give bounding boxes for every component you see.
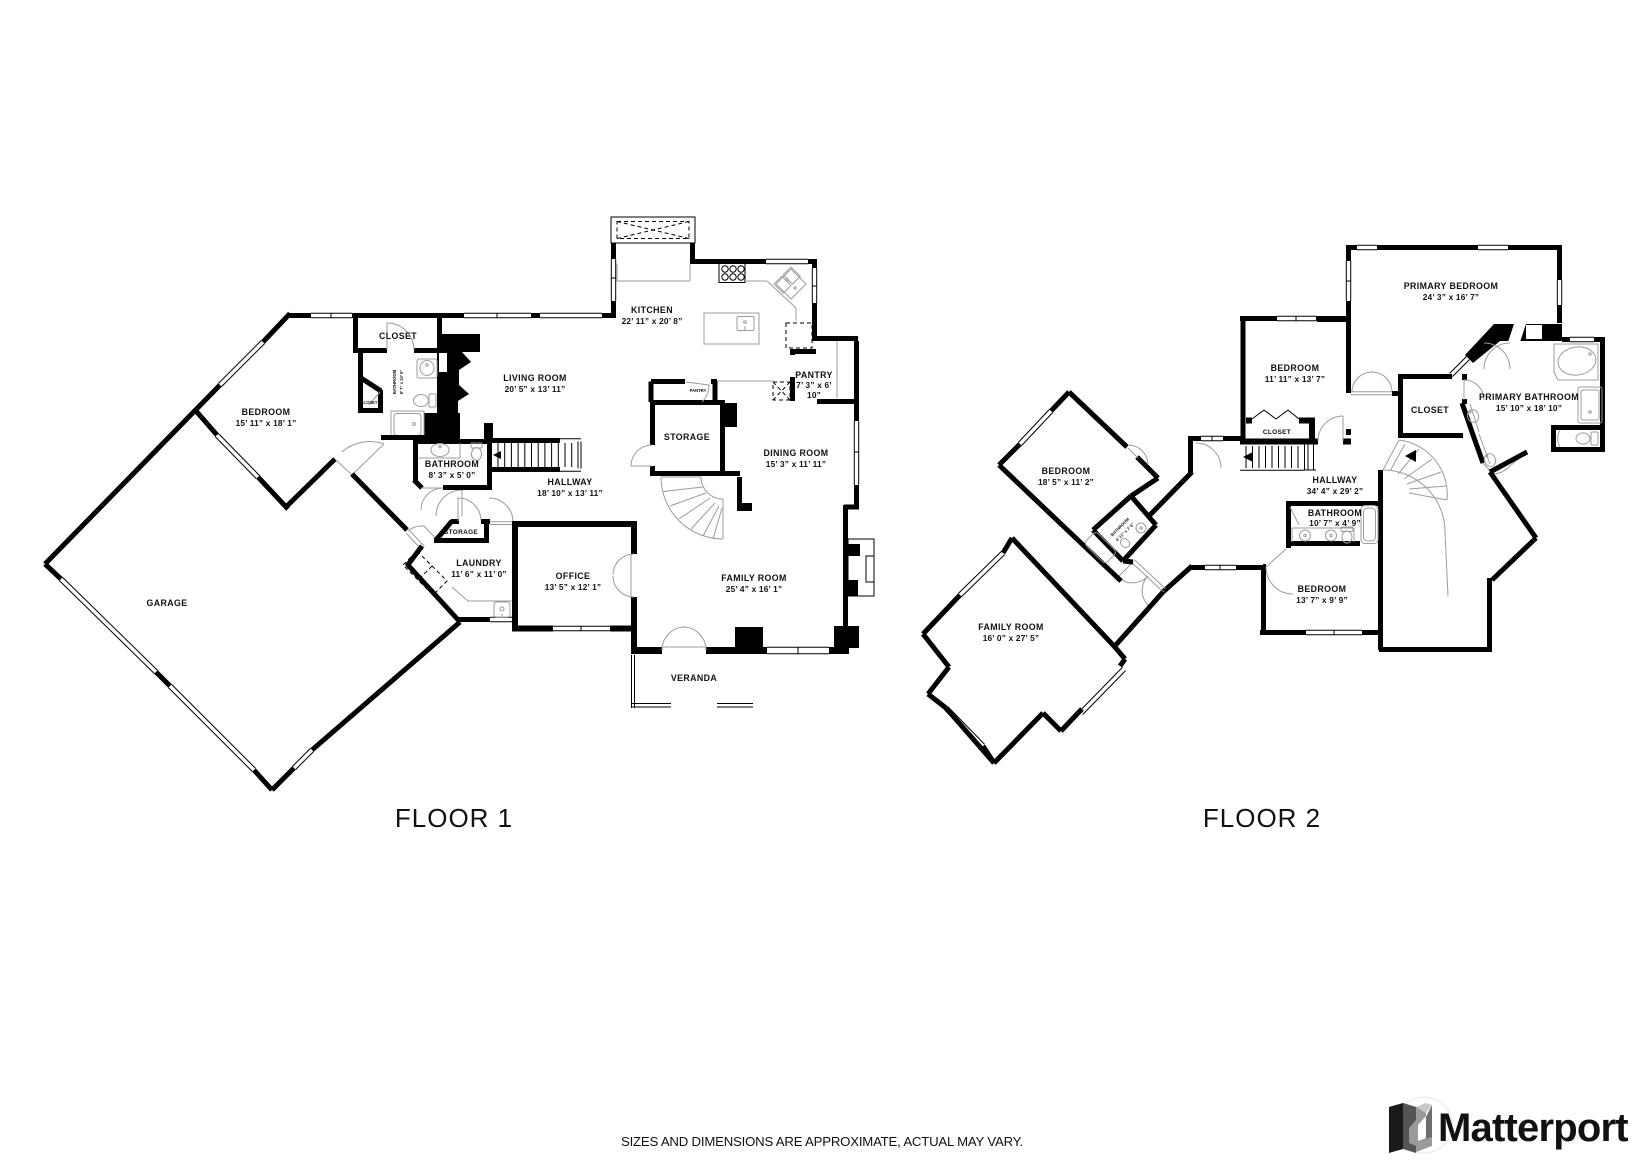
svg-text:BEDROOM: BEDROOM xyxy=(1298,584,1347,594)
svg-text:STORAGE: STORAGE xyxy=(444,529,478,536)
svg-text:11’ 11” x 13’ 7”: 11’ 11” x 13’ 7” xyxy=(1265,374,1325,384)
svg-text:GARAGE: GARAGE xyxy=(146,598,187,608)
svg-text:CLOSET: CLOSET xyxy=(379,331,417,341)
svg-text:FAMILY ROOM: FAMILY ROOM xyxy=(978,622,1044,632)
svg-text:BEDROOM: BEDROOM xyxy=(242,407,291,417)
svg-text:11’ 6” x 11’ 0”: 11’ 6” x 11’ 0” xyxy=(451,569,507,579)
svg-text:BEDROOM: BEDROOM xyxy=(1271,363,1320,373)
svg-text:15’ 11” x 18’ 1”: 15’ 11” x 18’ 1” xyxy=(236,418,297,428)
svg-text:HALLWAY: HALLWAY xyxy=(548,477,593,487)
svg-text:LIVING ROOM: LIVING ROOM xyxy=(503,373,567,383)
svg-text:PANTRY: PANTRY xyxy=(795,370,833,380)
svg-text:7’ 3” x 6’: 7’ 3” x 6’ xyxy=(796,380,832,390)
svg-text:CLOSET: CLOSET xyxy=(361,400,378,405)
svg-text:PANTRY: PANTRY xyxy=(690,388,707,393)
svg-text:FLOOR 1: FLOOR 1 xyxy=(395,803,513,833)
svg-text:34’ 4” x 29’ 2”: 34’ 4” x 29’ 2” xyxy=(1307,486,1364,496)
svg-text:15’ 3” x 11’ 11”: 15’ 3” x 11’ 11” xyxy=(766,459,826,469)
svg-text:HALLWAY: HALLWAY xyxy=(1313,475,1358,485)
svg-text:KITCHEN: KITCHEN xyxy=(631,305,673,315)
svg-text:10”: 10” xyxy=(807,390,821,400)
svg-text:FAMILY ROOM: FAMILY ROOM xyxy=(721,573,787,583)
svg-text:OFFICE: OFFICE xyxy=(556,571,591,581)
svg-text:20’ 5” x 13’ 11”: 20’ 5” x 13’ 11” xyxy=(505,384,566,394)
svg-text:25’ 4” x 16’ 1”: 25’ 4” x 16’ 1” xyxy=(726,584,783,594)
svg-text:22’ 11” x 20’ 8”: 22’ 11” x 20’ 8” xyxy=(622,316,683,326)
svg-text:15’ 10” x 18’ 10”: 15’ 10” x 18’ 10” xyxy=(1496,403,1562,413)
svg-text:CLOSET: CLOSET xyxy=(1263,429,1291,436)
svg-text:BATHROOM: BATHROOM xyxy=(425,459,479,469)
svg-text:LAUNDRY: LAUNDRY xyxy=(456,558,501,568)
svg-text:BEDROOM: BEDROOM xyxy=(1042,466,1091,476)
svg-text:BATHROOM: BATHROOM xyxy=(392,369,397,394)
svg-text:18’ 10” x 13’ 11”: 18’ 10” x 13’ 11” xyxy=(537,488,603,498)
svg-text:VERANDA: VERANDA xyxy=(671,673,718,683)
svg-text:BATHROOM: BATHROOM xyxy=(1308,508,1362,518)
svg-text:SIZES AND DIMENSIONS ARE APPRO: SIZES AND DIMENSIONS ARE APPROXIMATE, AC… xyxy=(621,1134,1023,1149)
svg-text:8’ 7” x 10’ 0”: 8’ 7” x 10’ 0” xyxy=(399,370,404,395)
svg-text:CLOSET: CLOSET xyxy=(1411,405,1449,415)
svg-text:13’ 5” x 12’ 1”: 13’ 5” x 12’ 1” xyxy=(545,582,602,592)
svg-text:DINING ROOM: DINING ROOM xyxy=(764,448,829,458)
svg-text:8’ 3” x 5’ 0”: 8’ 3” x 5’ 0” xyxy=(429,470,476,480)
svg-text:16’ 0” x 27’ 5”: 16’ 0” x 27’ 5” xyxy=(983,633,1040,643)
svg-text:Matterport: Matterport xyxy=(1438,1106,1628,1150)
svg-text:PRIMARY BEDROOM: PRIMARY BEDROOM xyxy=(1404,281,1498,291)
svg-text:STORAGE: STORAGE xyxy=(664,432,710,442)
svg-text:18’ 5” x 11’ 2”: 18’ 5” x 11’ 2” xyxy=(1038,477,1094,487)
svg-text:13’ 7” x 9’ 9”: 13’ 7” x 9’ 9” xyxy=(1296,595,1348,605)
svg-text:10’ 7” x 4’ 9”: 10’ 7” x 4’ 9” xyxy=(1309,518,1361,528)
svg-text:24’ 3” x 16’ 7”: 24’ 3” x 16’ 7” xyxy=(1423,292,1480,302)
svg-text:FLOOR 2: FLOOR 2 xyxy=(1203,803,1321,833)
svg-text:PRIMARY BATHROOM: PRIMARY BATHROOM xyxy=(1479,392,1579,402)
